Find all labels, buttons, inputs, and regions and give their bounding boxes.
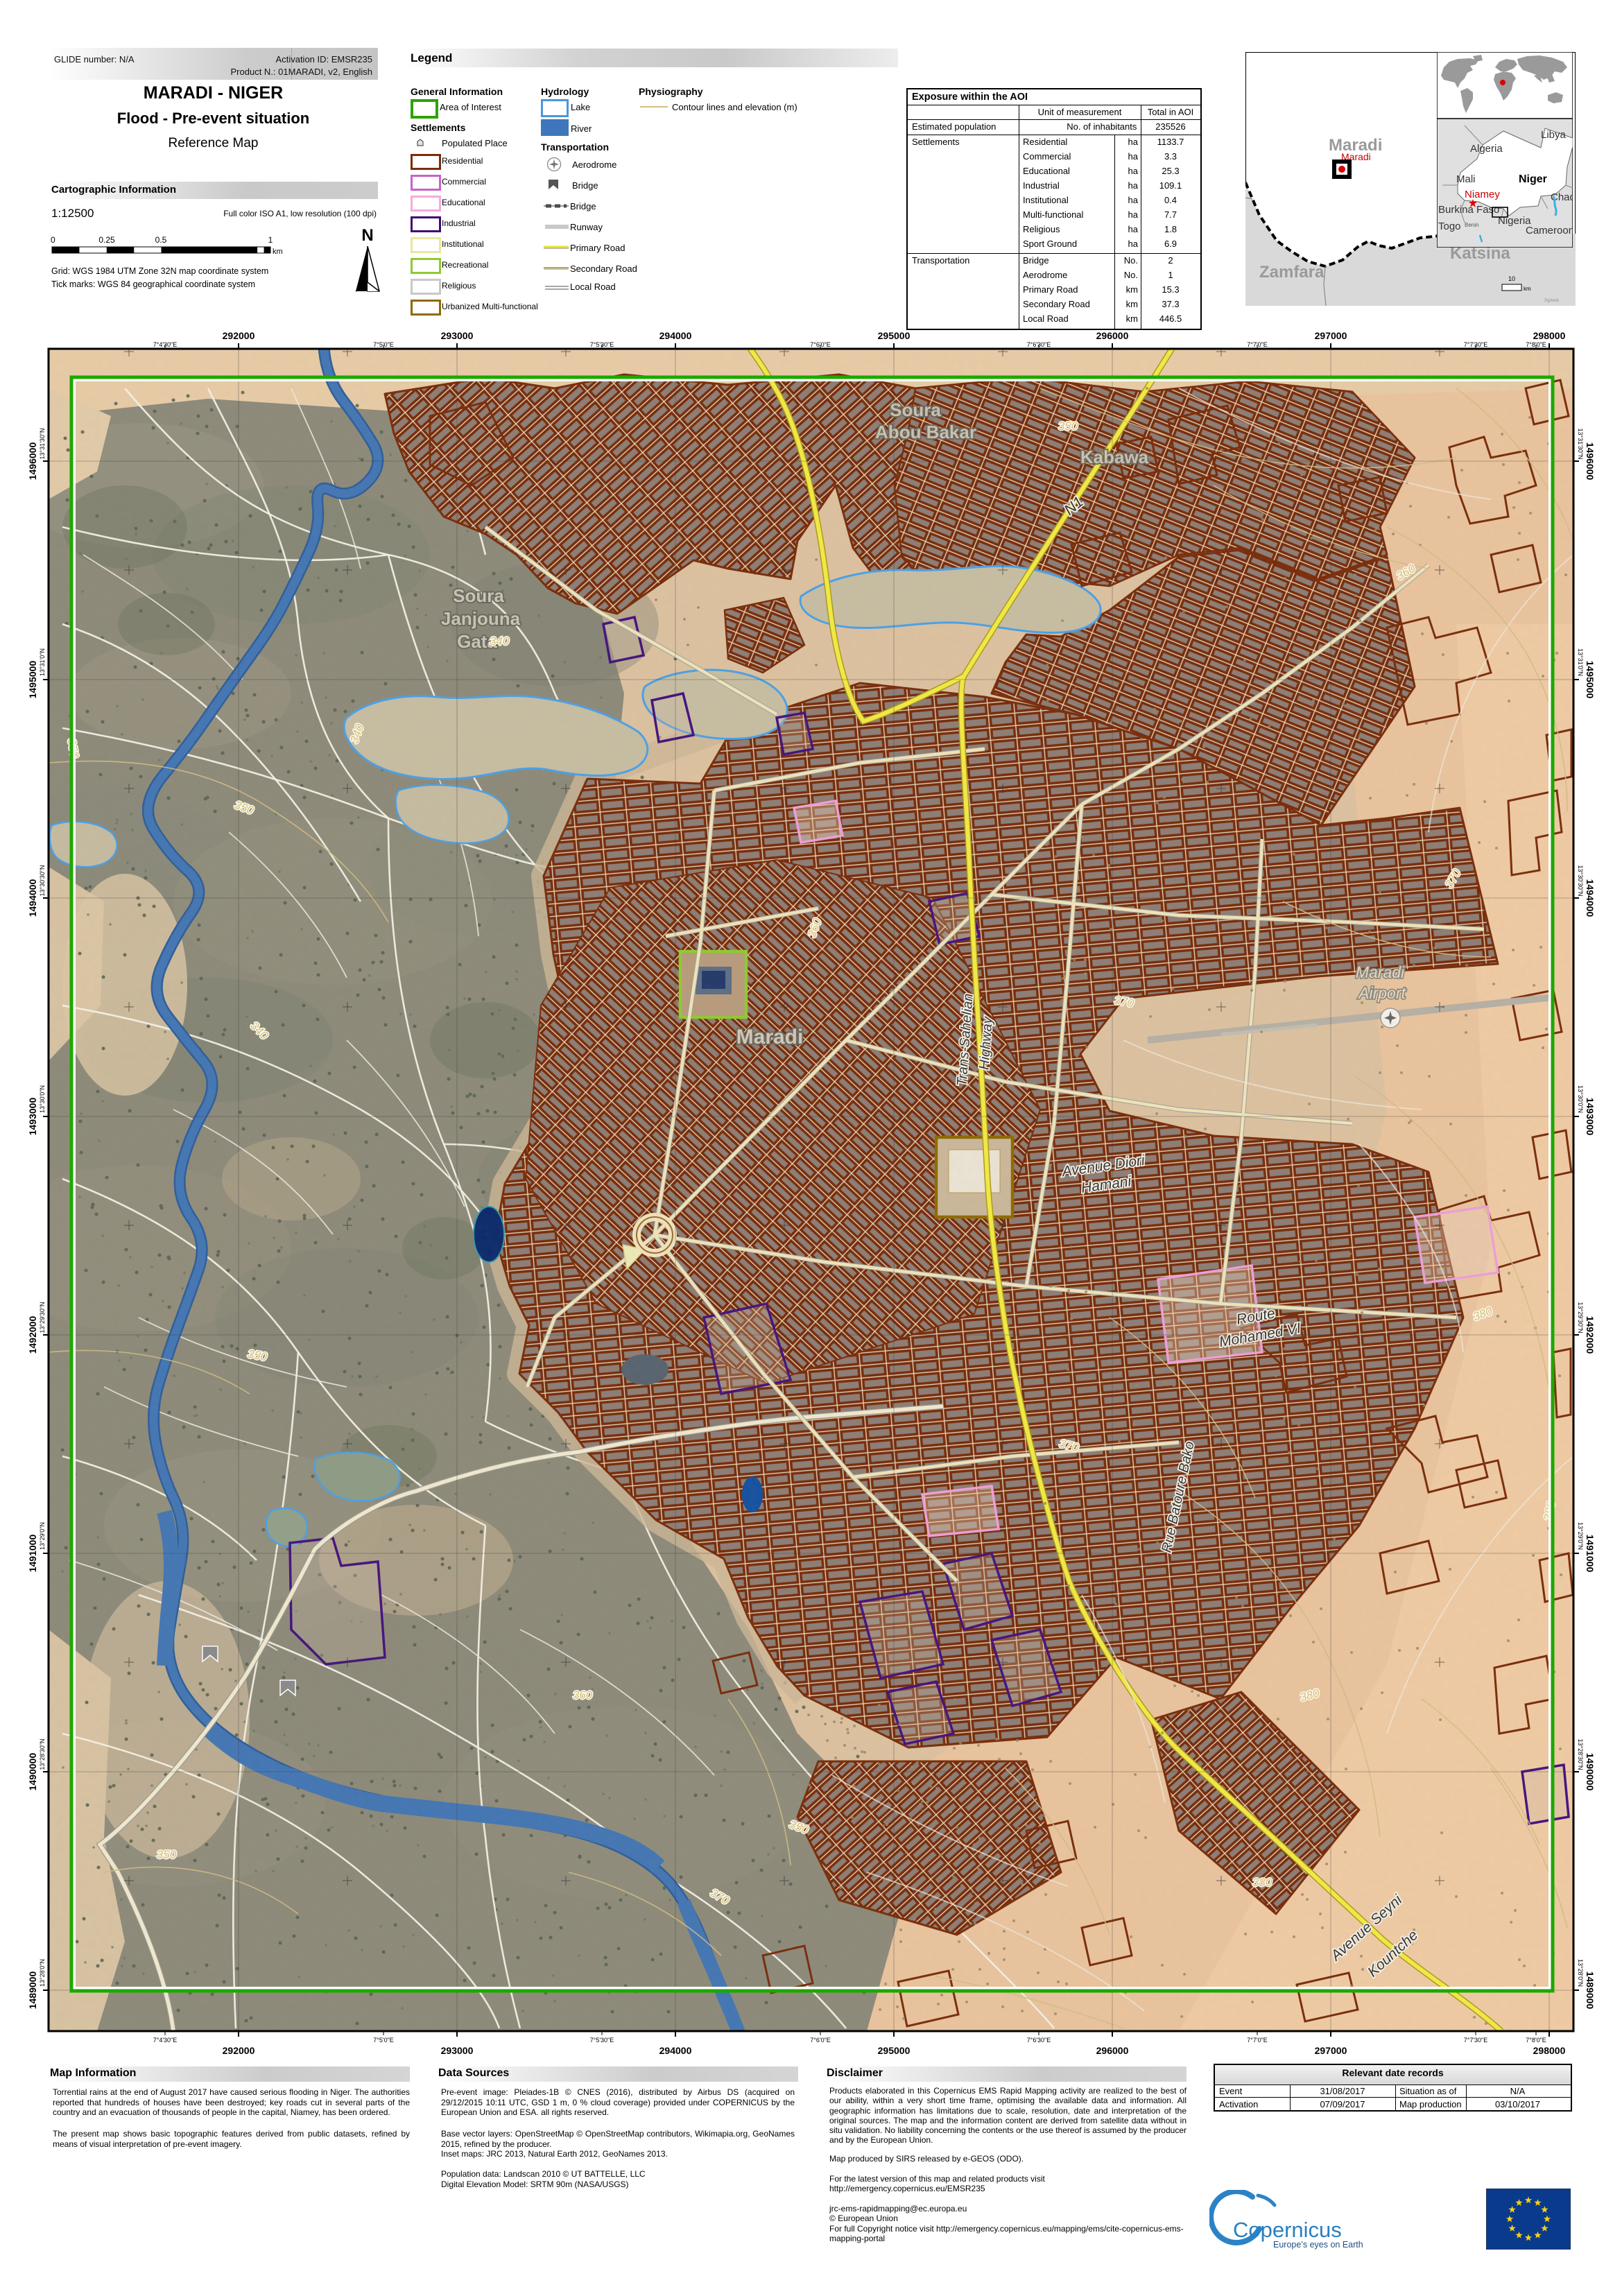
svg-text:13°29'0"N: 13°29'0"N (39, 1522, 46, 1550)
svg-text:Copernicus: Copernicus (1233, 2218, 1342, 2242)
svg-text:13°31'0"N: 13°31'0"N (1577, 648, 1584, 676)
svg-text:13°28'0"N: 13°28'0"N (39, 1959, 46, 1987)
svg-text:1496000: 1496000 (1585, 442, 1596, 481)
svg-text:294000: 294000 (659, 330, 692, 341)
svg-text:13°31'30"N: 13°31'30"N (1577, 428, 1584, 459)
svg-text:7°7'30"E: 7°7'30"E (1464, 2037, 1488, 2044)
svg-text:295000: 295000 (878, 330, 911, 341)
svg-text:7°7'30"E: 7°7'30"E (1464, 341, 1488, 348)
svg-text:7°6'30"E: 7°6'30"E (1027, 341, 1051, 348)
svg-text:13°29'0"N: 13°29'0"N (1577, 1522, 1584, 1550)
svg-text:Niger: Niger (1519, 173, 1547, 185)
svg-text:298000: 298000 (1533, 2045, 1566, 2056)
svg-text:7°5'0"E: 7°5'0"E (373, 341, 394, 348)
svg-text:1492000: 1492000 (1585, 1316, 1596, 1354)
svg-text:13°30'0"N: 13°30'0"N (39, 1085, 46, 1113)
svg-text:10: 10 (1508, 275, 1515, 282)
svg-text:295000: 295000 (878, 2045, 911, 2056)
svg-text:296000: 296000 (1096, 330, 1129, 341)
svg-text:296000: 296000 (1096, 2045, 1129, 2056)
svg-text:7°8'0"E: 7°8'0"E (1526, 2037, 1546, 2044)
svg-text:298000: 298000 (1533, 330, 1566, 341)
svg-text:1494000: 1494000 (1585, 879, 1596, 917)
svg-text:7°6'30"E: 7°6'30"E (1027, 2037, 1051, 2044)
svg-text:1492000: 1492000 (27, 1316, 38, 1354)
svg-text:7°8'0"E: 7°8'0"E (1526, 341, 1546, 348)
svg-text:Zamfara: Zamfara (1259, 263, 1325, 282)
svg-text:13°30'0"N: 13°30'0"N (1577, 1085, 1584, 1113)
svg-text:293000: 293000 (441, 330, 474, 341)
svg-text:292000: 292000 (223, 2045, 255, 2056)
svg-text:0.25: 0.25 (98, 235, 115, 245)
svg-text:1489000: 1489000 (27, 1971, 38, 2010)
svg-text:Mali: Mali (1456, 173, 1476, 185)
svg-text:Libya: Libya (1541, 129, 1567, 141)
svg-text:13°28'30"N: 13°28'30"N (1577, 1738, 1584, 1770)
svg-text:1491000: 1491000 (1585, 1535, 1596, 1573)
svg-text:13°29'30"N: 13°29'30"N (1577, 1302, 1584, 1333)
svg-text:1495000: 1495000 (1585, 661, 1596, 699)
svg-text:7°6'0"E: 7°6'0"E (810, 2037, 831, 2044)
svg-text:N: N (361, 226, 373, 245)
svg-text:13°31'0"N: 13°31'0"N (39, 648, 46, 676)
svg-text:292000: 292000 (223, 330, 255, 341)
svg-text:13°28'30"N: 13°28'30"N (39, 1738, 46, 1770)
svg-text:1489000: 1489000 (1585, 1971, 1596, 2010)
svg-text:km: km (1524, 286, 1531, 292)
svg-text:Algeria: Algeria (1470, 143, 1503, 155)
svg-text:7°5'30"E: 7°5'30"E (590, 341, 614, 348)
svg-text:Europe’s eyes on Earth: Europe’s eyes on Earth (1273, 2240, 1363, 2250)
svg-text:294000: 294000 (659, 2045, 692, 2056)
svg-text:13°29'30"N: 13°29'30"N (39, 1302, 46, 1333)
svg-text:Burkina Faso: Burkina Faso (1438, 204, 1499, 216)
svg-text:7°6'0"E: 7°6'0"E (810, 341, 831, 348)
svg-text:1: 1 (268, 235, 273, 245)
svg-text:13°31'30"N: 13°31'30"N (39, 428, 46, 459)
svg-text:Benin: Benin (1465, 222, 1478, 228)
svg-text:7°7'0"E: 7°7'0"E (1247, 341, 1268, 348)
svg-text:7°4'30"E: 7°4'30"E (153, 2037, 178, 2044)
svg-text:Jigawa: Jigawa (1544, 298, 1559, 303)
svg-text:7°5'30"E: 7°5'30"E (590, 2037, 614, 2044)
svg-text:1494000: 1494000 (27, 879, 38, 917)
svg-text:Niamey: Niamey (1465, 189, 1500, 200)
svg-text:1493000: 1493000 (27, 1098, 38, 1136)
svg-text:293000: 293000 (441, 2045, 474, 2056)
svg-text:1496000: 1496000 (27, 442, 38, 481)
svg-text:1495000: 1495000 (27, 661, 38, 699)
svg-text:13°30'30"N: 13°30'30"N (1577, 865, 1584, 896)
svg-text:1491000: 1491000 (27, 1535, 38, 1573)
svg-text:13°28'0"N: 13°28'0"N (1577, 1959, 1584, 1987)
svg-text:0.5: 0.5 (155, 235, 167, 245)
svg-text:1493000: 1493000 (1585, 1098, 1596, 1136)
svg-text:7°7'0"E: 7°7'0"E (1247, 2037, 1268, 2044)
svg-text:7°4'30"E: 7°4'30"E (153, 341, 178, 348)
svg-text:297000: 297000 (1315, 330, 1347, 341)
svg-text:0: 0 (51, 235, 55, 245)
svg-text:Cameroon: Cameroon (1526, 225, 1573, 236)
svg-text:1490000: 1490000 (27, 1753, 38, 1791)
svg-text:13°30'30"N: 13°30'30"N (39, 865, 46, 896)
svg-text:Togo: Togo (1438, 221, 1461, 232)
svg-text:297000: 297000 (1315, 2045, 1347, 2056)
svg-text:7°5'0"E: 7°5'0"E (373, 2037, 394, 2044)
svg-text:km: km (273, 248, 283, 256)
svg-text:1490000: 1490000 (1585, 1753, 1596, 1791)
